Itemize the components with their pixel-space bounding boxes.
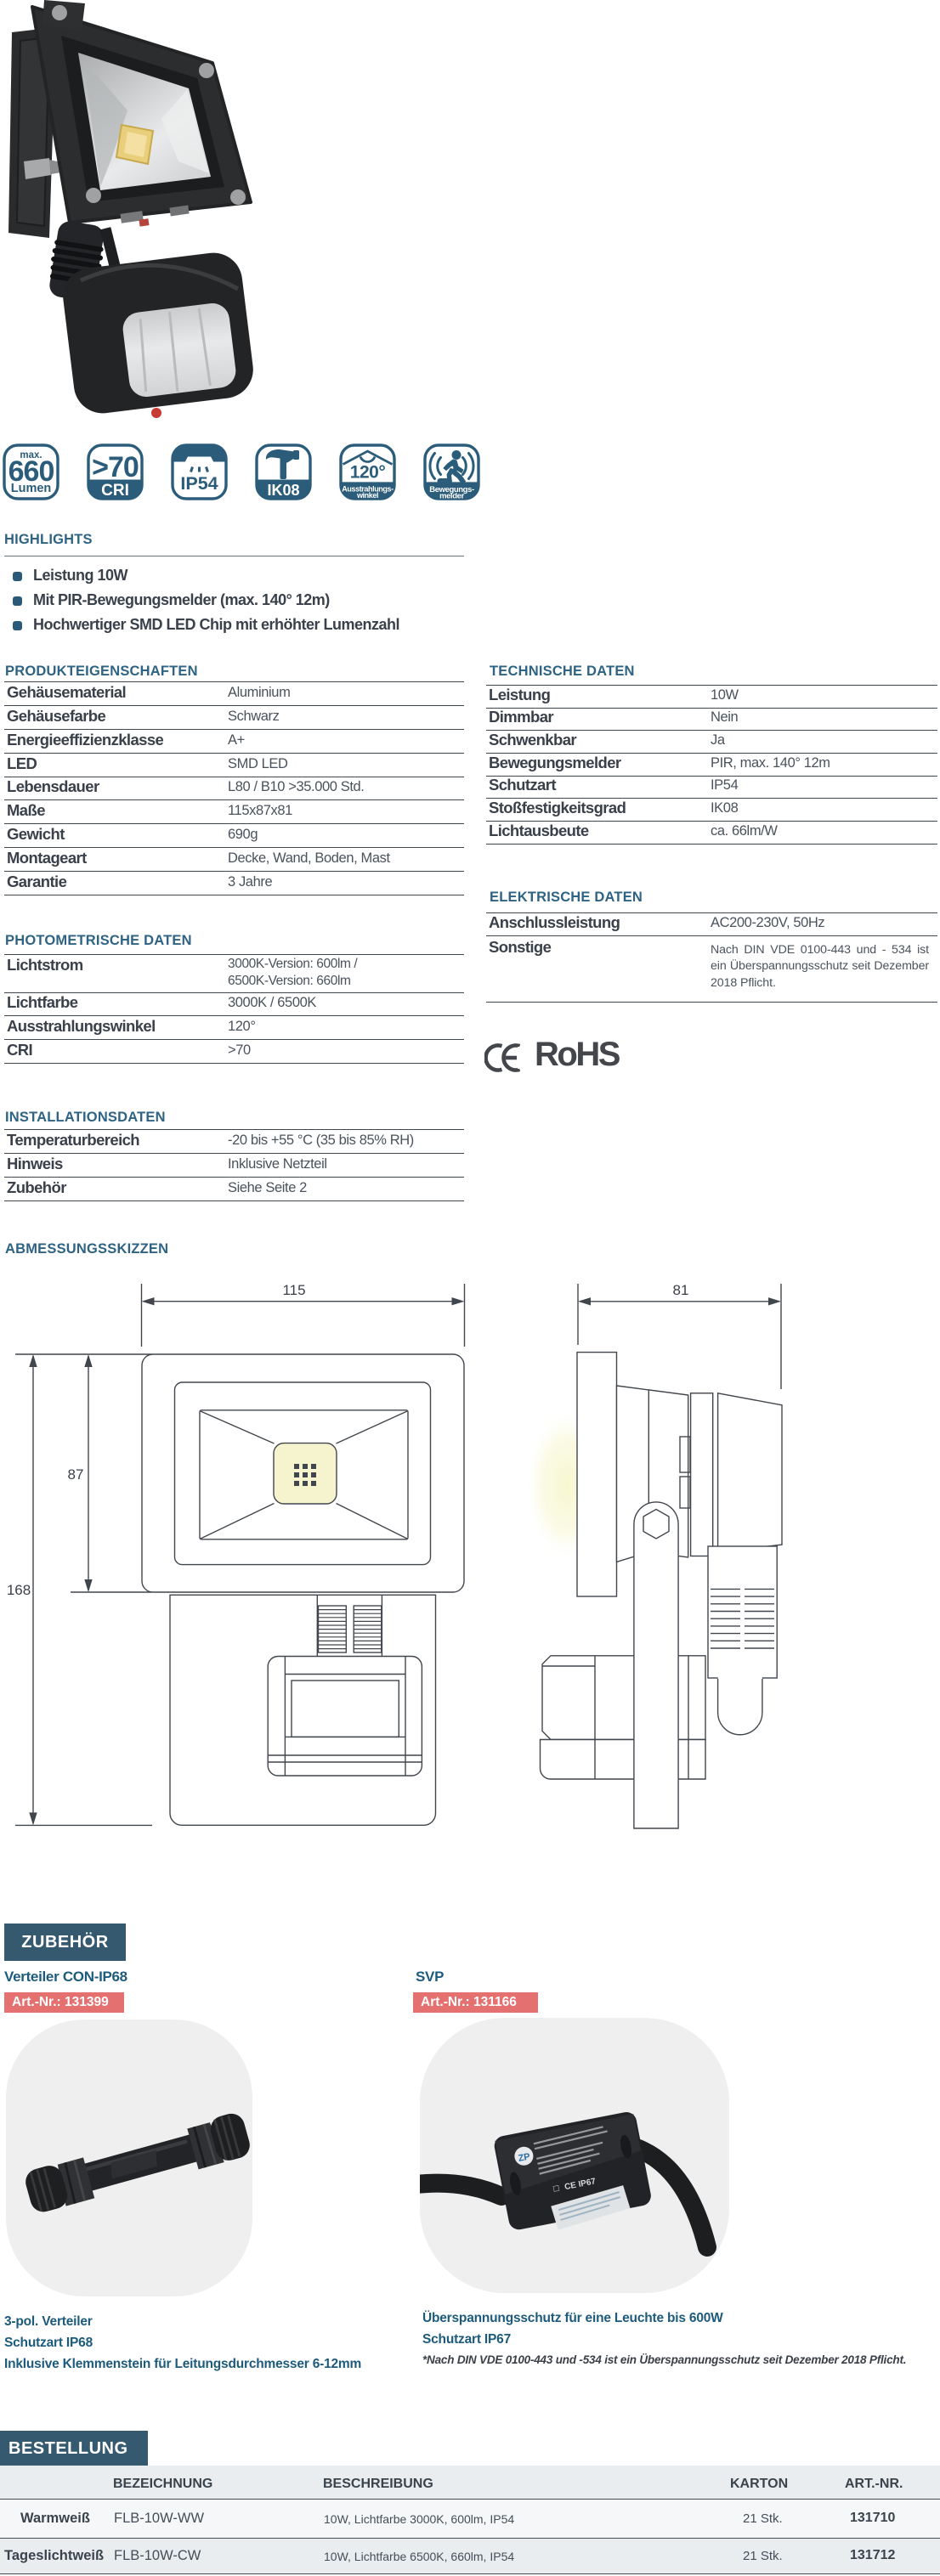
svg-text:winkel: winkel bbox=[356, 491, 378, 500]
svg-text:Lumen: Lumen bbox=[11, 482, 52, 495]
svg-text:>70: >70 bbox=[92, 451, 139, 483]
svg-text:87: 87 bbox=[68, 1466, 84, 1483]
svg-text:115: 115 bbox=[282, 1282, 305, 1298]
svg-text:melder: melder bbox=[439, 491, 464, 500]
svg-text:120°: 120° bbox=[350, 463, 386, 483]
svg-text:81: 81 bbox=[673, 1282, 689, 1298]
svg-text:IK08: IK08 bbox=[267, 482, 299, 499]
svg-text:IP54: IP54 bbox=[180, 473, 218, 494]
svg-text:168: 168 bbox=[7, 1582, 31, 1598]
svg-text:CRI: CRI bbox=[101, 482, 129, 500]
